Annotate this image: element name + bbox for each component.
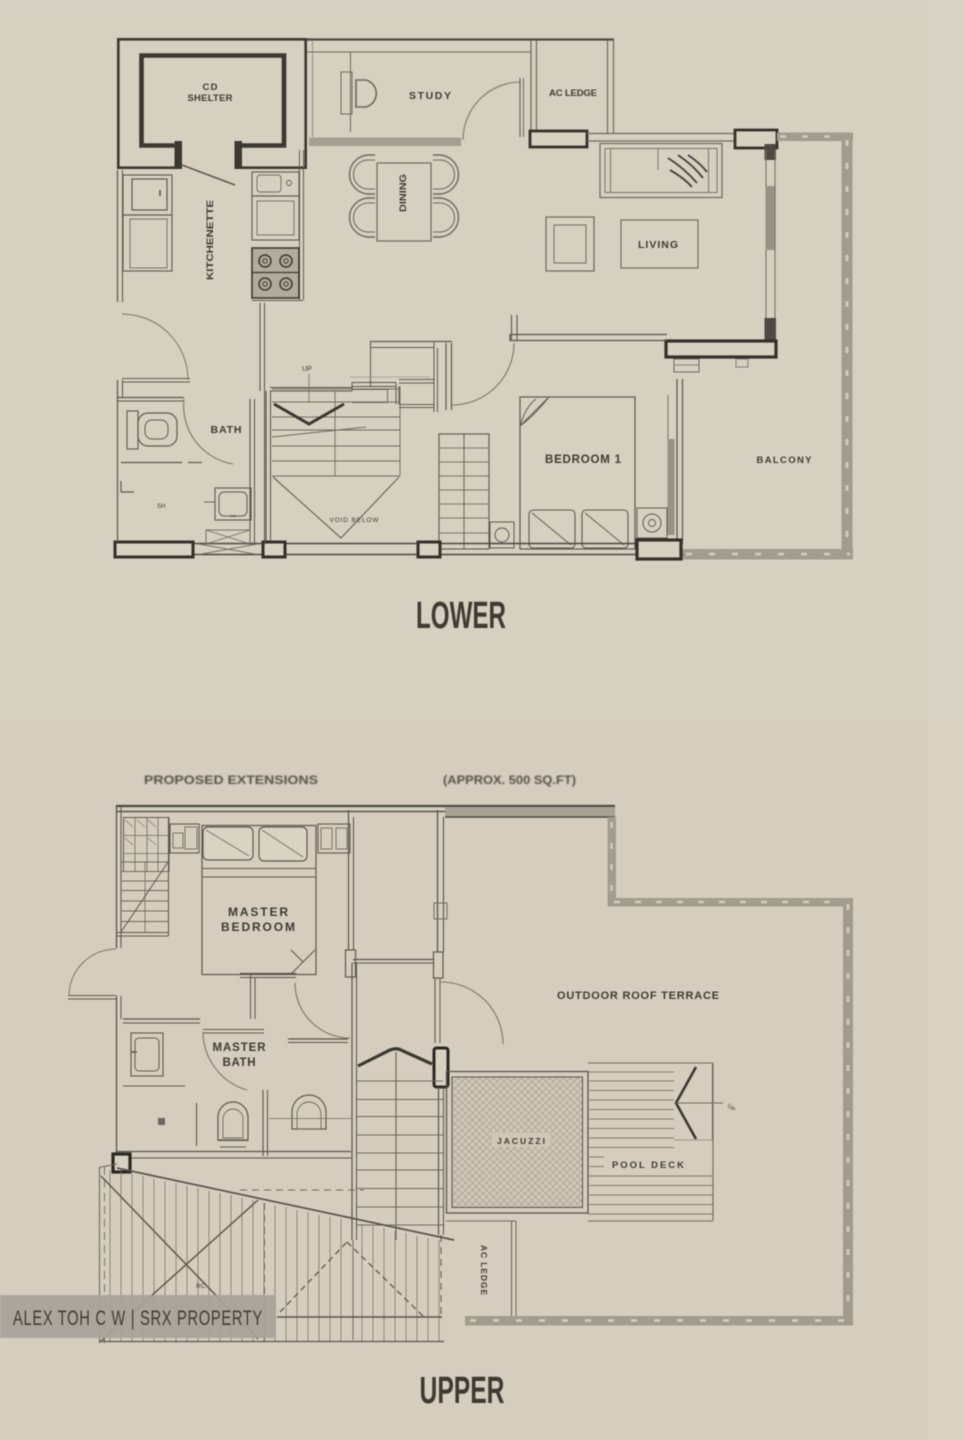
svg-text:POOL DECK: POOL DECK (612, 1160, 684, 1171)
svg-text:SHELTER: SHELTER (188, 93, 233, 104)
svg-text:OUTDOOR ROOF TERRACE: OUTDOOR ROOF TERRACE (557, 990, 719, 1002)
svg-text:(APPROX. 500 SQ.FT): (APPROX. 500 SQ.FT) (443, 775, 576, 787)
svg-text:MASTER: MASTER (213, 1042, 267, 1054)
svg-text:SH: SH (157, 504, 165, 510)
svg-text:BALCONY: BALCONY (757, 455, 813, 466)
svg-text:LOWER: LOWER (416, 595, 506, 637)
svg-text:STUDY: STUDY (409, 90, 451, 102)
svg-text:MASTER: MASTER (228, 905, 288, 919)
svg-text:DINING: DINING (398, 174, 408, 212)
svg-text:VOID BELOW: VOID BELOW (330, 517, 380, 524)
svg-text:UPPER: UPPER (420, 1370, 505, 1412)
svg-text:JACUZZI: JACUZZI (497, 1136, 545, 1146)
svg-text:RC: RC (196, 1283, 206, 1290)
svg-text:ALEX TOH C W | SRX PROPERTY: ALEX TOH C W | SRX PROPERTY (13, 1306, 263, 1330)
svg-text:LIVING: LIVING (638, 239, 678, 251)
svg-text:AC LEDGE: AC LEDGE (549, 88, 597, 99)
svg-text:BATH: BATH (223, 1057, 256, 1069)
svg-text:PROPOSED EXTENSIONS: PROPOSED EXTENSIONS (144, 775, 318, 787)
svg-text:BATH: BATH (211, 424, 242, 436)
svg-text:CD: CD (203, 82, 218, 93)
svg-text:UP: UP (302, 366, 312, 373)
svg-text:KITCHENETTE: KITCHENETTE (205, 200, 215, 280)
svg-text:AC LEDGE: AC LEDGE (479, 1245, 489, 1295)
svg-text:BEDROOM 1: BEDROOM 1 (545, 454, 622, 466)
